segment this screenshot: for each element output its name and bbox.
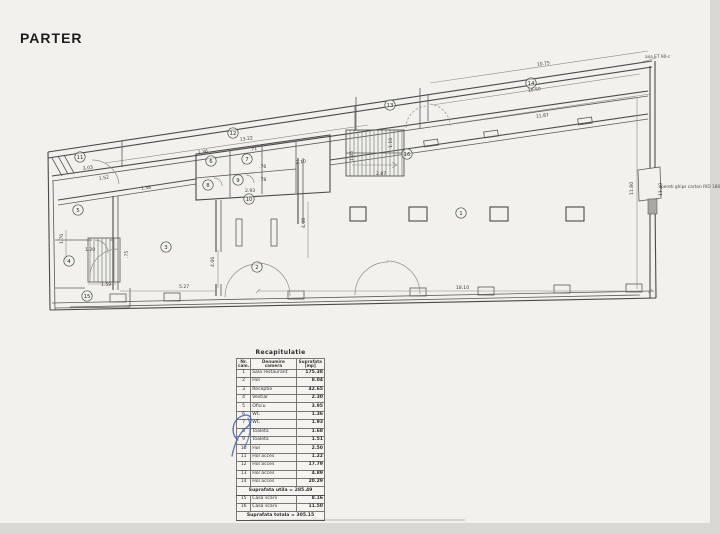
room-number-label: 1 bbox=[459, 211, 462, 217]
table-row: 7WC1.93 bbox=[237, 420, 325, 428]
table-cell: Receptie bbox=[251, 386, 296, 394]
table-cell: 175.38 bbox=[296, 369, 324, 377]
table-cell: 6 bbox=[237, 411, 251, 419]
dimension-label: 1.36 bbox=[197, 149, 208, 156]
bottom-pilasters bbox=[110, 284, 642, 302]
room-number-label: 3 bbox=[164, 245, 167, 251]
dimension-label: 18.10 bbox=[456, 285, 469, 291]
dimension-label: 2.10 bbox=[295, 159, 306, 166]
table-cell: Sala restaurant bbox=[251, 369, 296, 377]
table-cell: 14 bbox=[237, 478, 251, 486]
dimension-label: 1.05 bbox=[349, 151, 355, 161]
table-cell: 17.79 bbox=[296, 462, 324, 470]
table-cell: Hol bbox=[251, 378, 296, 386]
plan-notes: axa ET 90-cpereti ghips carton RID 180 bbox=[645, 54, 720, 190]
dimension-label: 10.75 bbox=[536, 60, 550, 68]
table-cell: 42.65 bbox=[296, 386, 324, 394]
table-cell: 1.93 bbox=[296, 420, 324, 428]
dimension-label: 5.27 bbox=[179, 284, 189, 290]
table-cell: 9 bbox=[237, 436, 251, 444]
table-cell: 3.95 bbox=[296, 403, 324, 411]
dimension-label: 1.59 bbox=[101, 282, 111, 288]
room-number-label: 4 bbox=[67, 259, 71, 265]
subtotal-row: Suprafata utila = 285.49 bbox=[237, 487, 325, 495]
col-header-number: Nr. cam. bbox=[237, 359, 251, 370]
room-numbers: 12345678910111213141516 bbox=[64, 78, 536, 301]
table-row: 14Hol acces20.29 bbox=[237, 478, 325, 486]
dimension-label: 11.87 bbox=[535, 112, 549, 120]
col-header-area: Suprafata [mp] bbox=[296, 359, 324, 370]
columns bbox=[350, 207, 584, 221]
table-cell: 2.30 bbox=[296, 394, 324, 402]
subtotal-row-label: Suprafata utila = 285.49 bbox=[237, 487, 325, 495]
table-cell: 10 bbox=[237, 445, 251, 453]
room-number-label: 7 bbox=[245, 157, 248, 163]
table-row: 6WC1.36 bbox=[237, 411, 325, 419]
table-cell: 13 bbox=[237, 470, 251, 478]
stair16 bbox=[346, 88, 450, 176]
table-row: 11Hol acces1.22 bbox=[237, 453, 325, 461]
table-row: 2Hol8.04 bbox=[237, 378, 325, 386]
table-cell: Hol bbox=[251, 445, 296, 453]
table-row: 5Oficiu3.95 bbox=[237, 403, 325, 411]
room-number-label: 15 bbox=[84, 294, 91, 300]
dimension-label: 4.06 bbox=[210, 257, 216, 267]
table-row: 9Toaleta1.51 bbox=[237, 436, 325, 444]
table-cell: 8.16 bbox=[296, 495, 324, 503]
dimension-label: 1.16 bbox=[388, 138, 394, 148]
table-row: 15Casa scarii8.16 bbox=[237, 495, 325, 503]
plan-note: pereti ghips carton RID 180 bbox=[661, 184, 720, 190]
table-row: 16Casa scarii11.50 bbox=[237, 504, 325, 512]
floor-plan: 3.031.521.3813.2210.7510.5011.871.36.71.… bbox=[0, 0, 720, 534]
table-row: 4Vestiar2.30 bbox=[237, 394, 325, 402]
dimension-label: .76 bbox=[259, 164, 266, 170]
table-cell: 1 bbox=[237, 369, 251, 377]
room-number-label: 14 bbox=[528, 81, 535, 87]
table-cell: WC bbox=[251, 420, 296, 428]
table-cell: Vestiar bbox=[251, 394, 296, 402]
room-number-label: 5 bbox=[76, 208, 79, 214]
table-cell: 11.50 bbox=[296, 504, 324, 512]
table-cell: Hol acces bbox=[251, 462, 296, 470]
table-cell: 8 bbox=[237, 428, 251, 436]
table-row: 10Hol2.50 bbox=[237, 445, 325, 453]
recap-table: Recapitulatie Nr. cam. Denumire camera S… bbox=[236, 349, 325, 521]
table-cell: Hol acces bbox=[251, 453, 296, 461]
table-cell: 3 bbox=[237, 386, 251, 394]
table-cell: 7 bbox=[237, 420, 251, 428]
table-cell: 20.29 bbox=[296, 478, 324, 486]
table-cell: Hol acces bbox=[251, 470, 296, 478]
table-cell: 1.36 bbox=[296, 411, 324, 419]
table-row: 3Receptie42.65 bbox=[237, 386, 325, 394]
recap-table-title: Recapitulatie bbox=[236, 349, 325, 356]
table-cell: Casa scarii bbox=[251, 504, 296, 512]
dimension-label: 2.87 bbox=[376, 171, 386, 177]
room-number-label: 13 bbox=[387, 103, 394, 109]
dimension-label: .78 bbox=[259, 177, 266, 183]
plan-note: axa ET 90-c bbox=[645, 54, 671, 60]
table-cell: Toaleta bbox=[251, 436, 296, 444]
room-number-label: 8 bbox=[206, 183, 210, 189]
table-cell: 4 bbox=[237, 394, 251, 402]
table-row: 8Toaleta1.68 bbox=[237, 428, 325, 436]
table-cell: 2 bbox=[237, 378, 251, 386]
table-row: 12Hol acces17.79 bbox=[237, 462, 325, 470]
room-number-label: 2 bbox=[255, 265, 258, 271]
dimension-label: 1.20 bbox=[85, 247, 95, 253]
table-cell: Oficiu bbox=[251, 403, 296, 411]
table-cell: WC bbox=[251, 411, 296, 419]
table-cell: 12 bbox=[237, 462, 251, 470]
table-cell: Hol acces bbox=[251, 478, 296, 486]
table-cell: 1.22 bbox=[296, 453, 324, 461]
table-cell: 16 bbox=[237, 504, 251, 512]
room-number-label: 10 bbox=[246, 197, 253, 203]
outer-walls bbox=[48, 61, 656, 310]
dimension-label: .71 bbox=[249, 146, 257, 153]
room-number-label: 12 bbox=[230, 131, 237, 137]
table-cell: 11 bbox=[237, 453, 251, 461]
table-cell: Casa scarii bbox=[251, 495, 296, 503]
total-row-label: Suprafata totala = 305.15 bbox=[237, 512, 325, 520]
room-number-label: 11 bbox=[77, 155, 84, 161]
table-cell: 4.89 bbox=[296, 470, 324, 478]
dimension-label: 4.08 bbox=[301, 218, 307, 228]
table-cell: 5 bbox=[237, 403, 251, 411]
table-header-row: Nr. cam. Denumire camera Suprafata [mp] bbox=[237, 359, 325, 370]
table-row: 13Hol acces4.89 bbox=[237, 470, 325, 478]
room-number-label: 6 bbox=[209, 159, 213, 165]
dimension-label: .75 bbox=[124, 251, 130, 258]
table-cell: 1.51 bbox=[296, 436, 324, 444]
table-row: 1Sala restaurant175.38 bbox=[237, 369, 325, 377]
right-porch bbox=[638, 167, 661, 214]
dimension-label: 2.93 bbox=[245, 188, 255, 194]
dimension-label: 1.52 bbox=[98, 174, 109, 182]
table-cell: 1.68 bbox=[296, 428, 324, 436]
table-cell: 8.04 bbox=[296, 378, 324, 386]
total-row: Suprafata totala = 305.15 bbox=[237, 512, 325, 520]
dimension-label: 11.80 bbox=[629, 182, 635, 195]
table-cell: 15 bbox=[237, 495, 251, 503]
table-cell: Toaleta bbox=[251, 428, 296, 436]
dimension-label: 1.70 bbox=[59, 234, 65, 244]
room-number-label: 16 bbox=[404, 152, 411, 158]
room-number-label: 9 bbox=[236, 178, 240, 184]
table-cell: 2.50 bbox=[296, 445, 324, 453]
col-header-name: Denumire camera bbox=[251, 359, 296, 370]
